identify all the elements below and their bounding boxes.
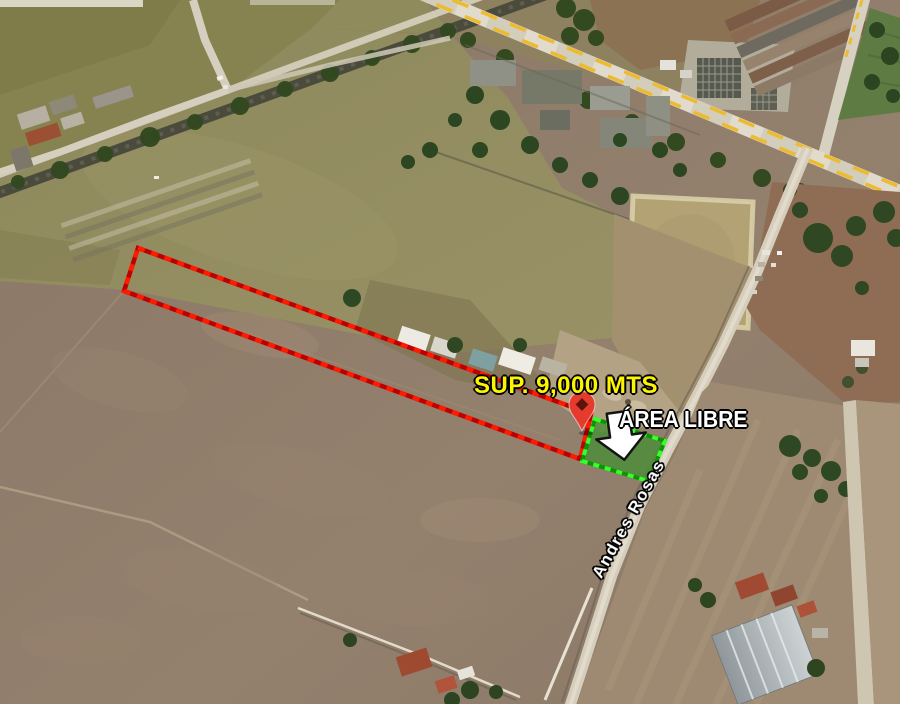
map-canvas: SUP. 9,000 MTS ÁREA LIBRE Andres Rosas bbox=[0, 0, 900, 704]
satellite-terrain bbox=[0, 0, 900, 704]
surface-area-label: SUP. 9,000 MTS bbox=[474, 372, 658, 400]
free-area-label: ÁREA LIBRE bbox=[619, 406, 748, 433]
